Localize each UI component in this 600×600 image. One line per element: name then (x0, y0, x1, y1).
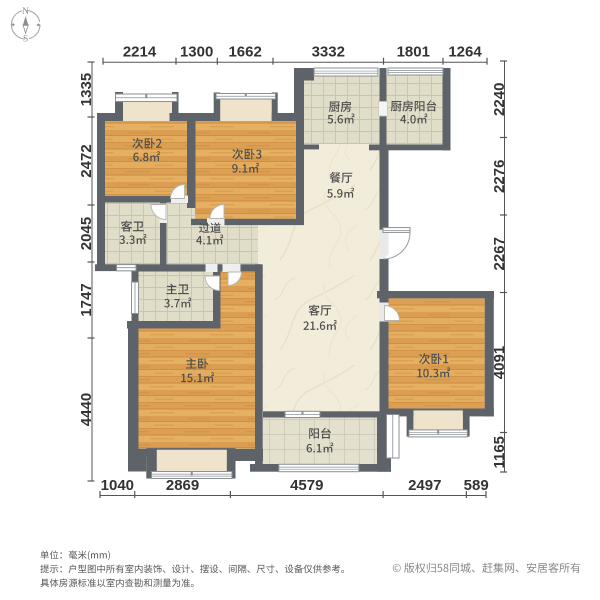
svg-text:N: N (22, 7, 29, 17)
svg-text:4440: 4440 (78, 393, 95, 426)
svg-text:S: S (23, 35, 28, 45)
svg-text:1662: 1662 (228, 44, 261, 61)
svg-text:589: 589 (464, 477, 489, 494)
svg-text:1300: 1300 (180, 44, 213, 61)
svg-text:1747: 1747 (78, 283, 95, 316)
svg-text:2497: 2497 (408, 477, 441, 494)
svg-text:1335: 1335 (78, 73, 95, 106)
svg-text:1165: 1165 (491, 436, 508, 469)
svg-text:2276: 2276 (491, 160, 508, 193)
svg-text:2240: 2240 (491, 83, 508, 116)
svg-text:1801: 1801 (397, 44, 430, 61)
svg-text:2267: 2267 (491, 237, 508, 270)
svg-text:4091: 4091 (491, 346, 508, 379)
svg-text:1264: 1264 (448, 44, 482, 61)
svg-text:2869: 2869 (166, 477, 199, 494)
svg-text:4579: 4579 (290, 477, 323, 494)
svg-text:2045: 2045 (78, 217, 95, 250)
svg-text:2214: 2214 (123, 44, 157, 61)
svg-text:2472: 2472 (78, 144, 95, 177)
svg-text:3332: 3332 (312, 44, 345, 61)
svg-text:1040: 1040 (101, 477, 134, 494)
